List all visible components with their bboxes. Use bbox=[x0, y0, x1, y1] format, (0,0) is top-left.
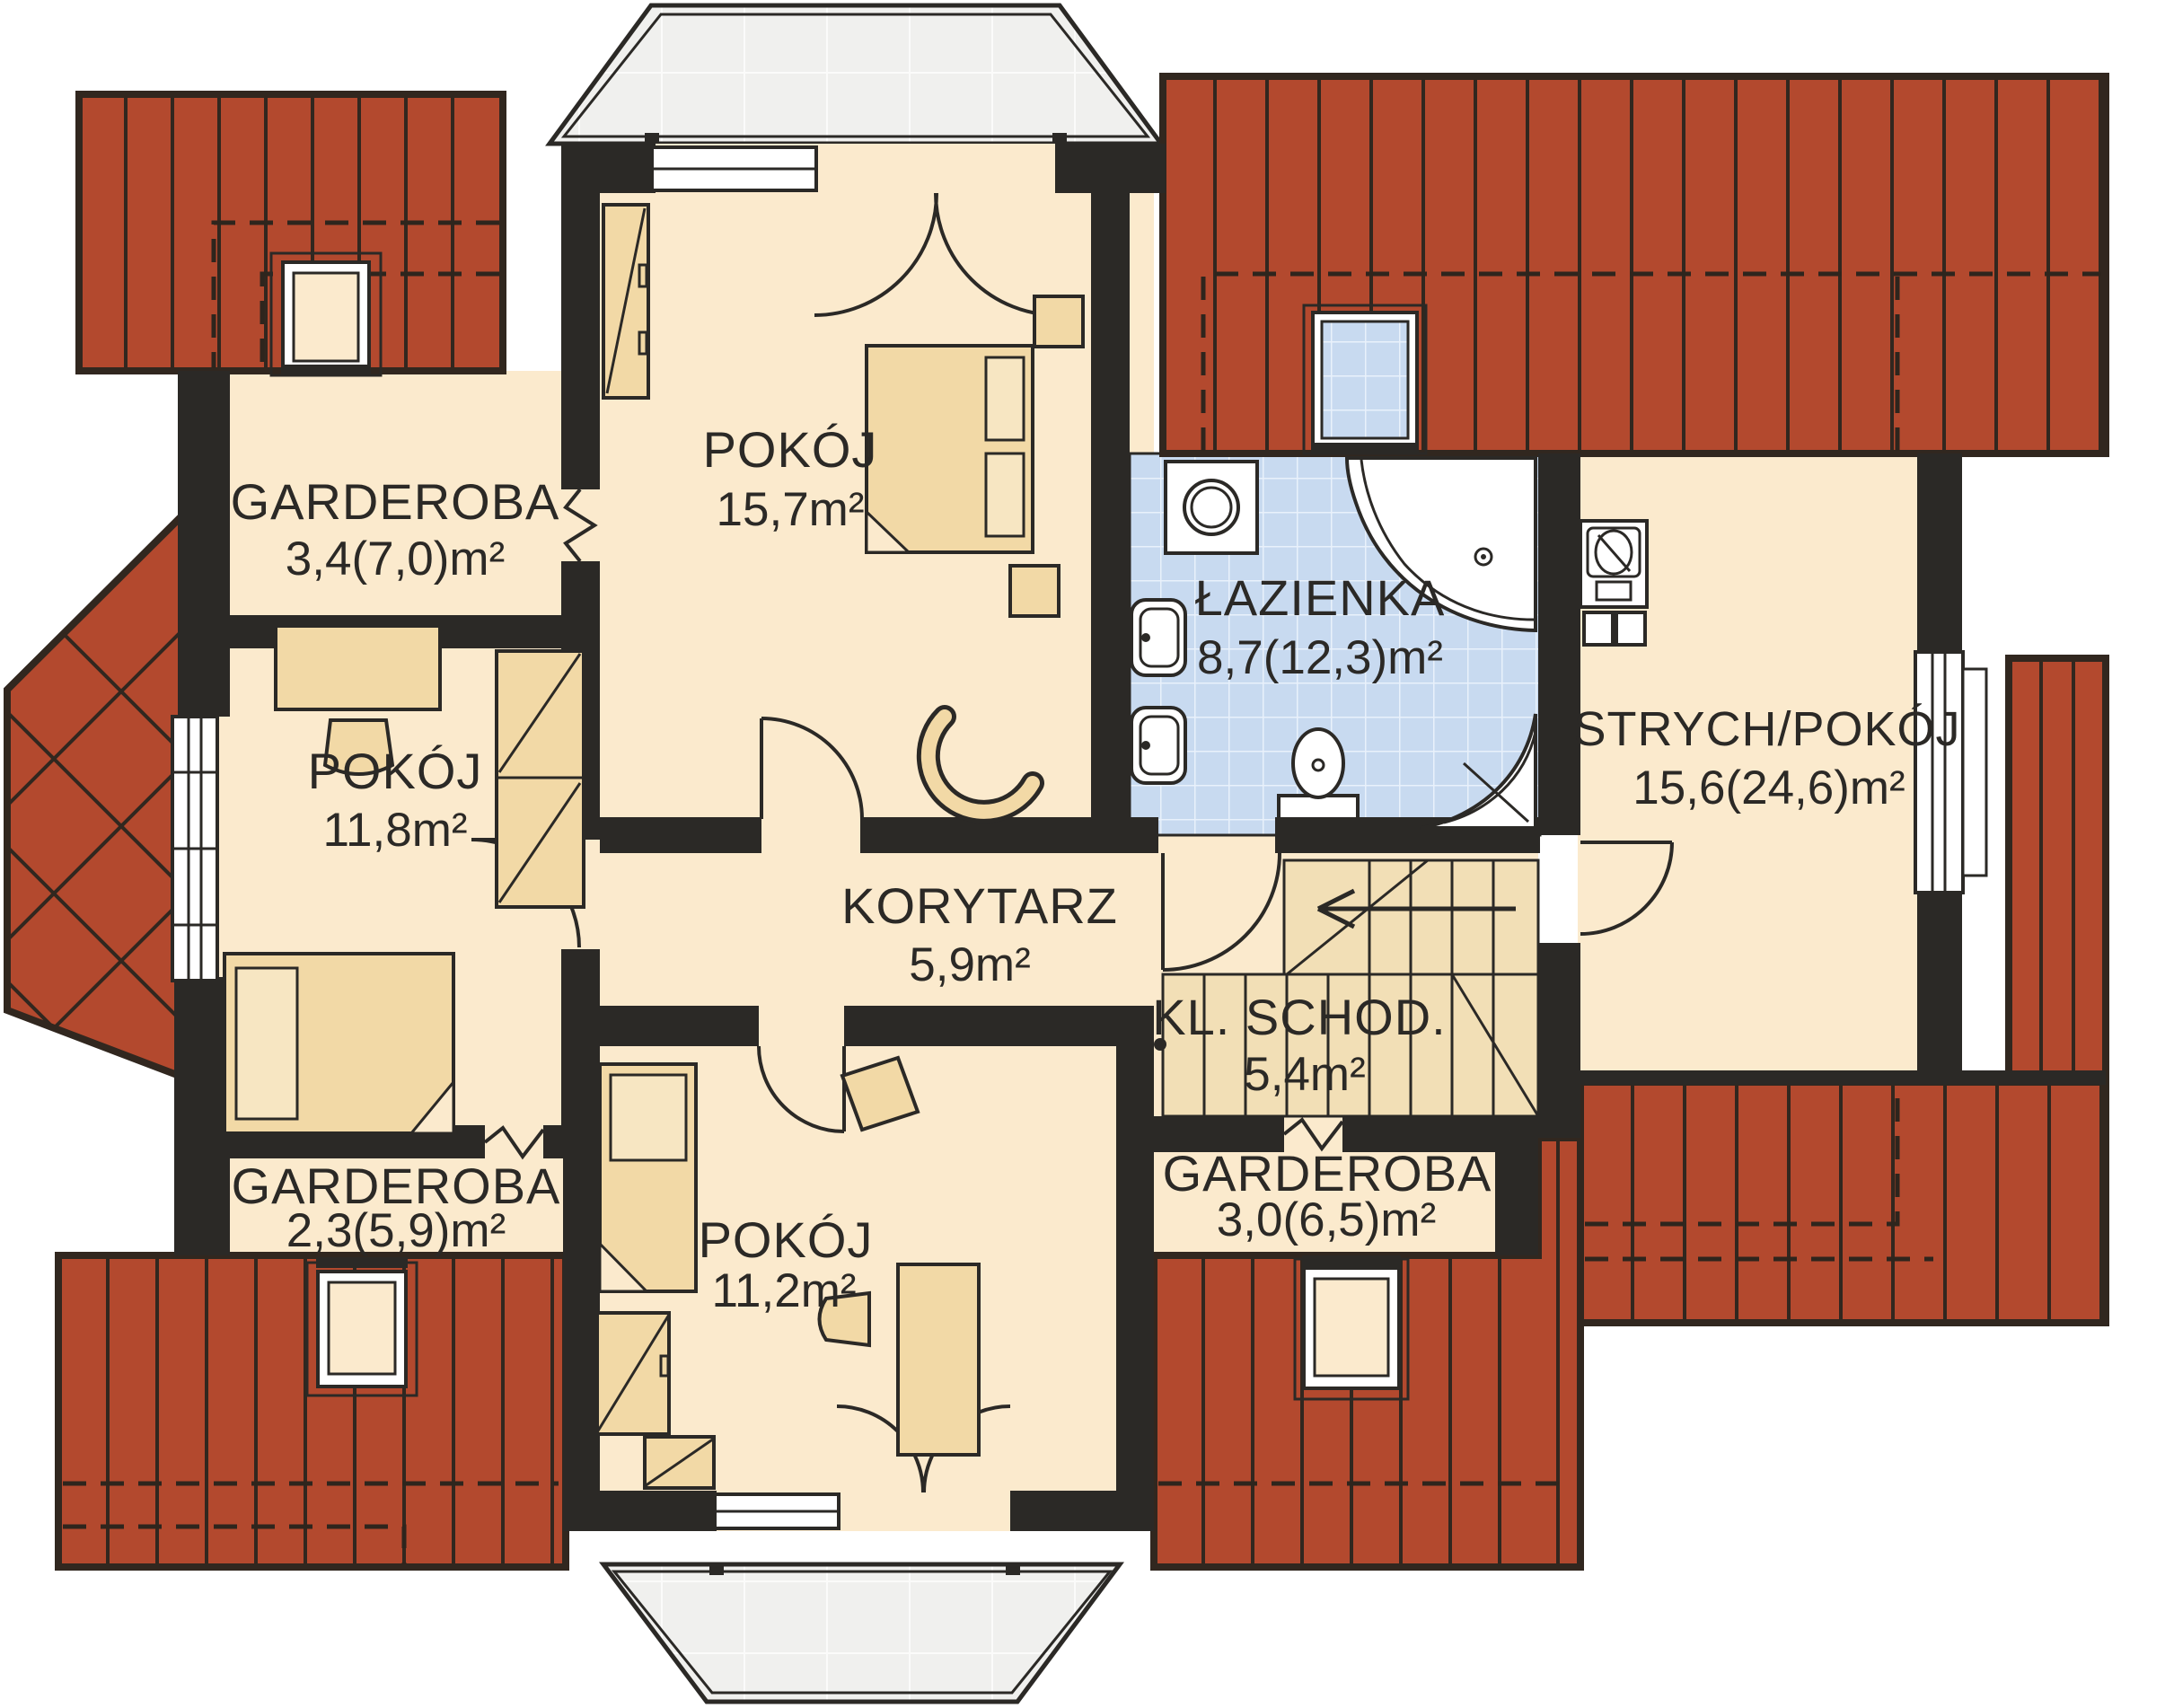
folding-door-garderoba-bl bbox=[485, 1125, 543, 1158]
double-bed-symbol bbox=[867, 346, 1033, 552]
desk-symbol-2 bbox=[898, 1264, 979, 1455]
room-area-garderoba-br: 3,0(6,5)m² bbox=[1217, 1193, 1436, 1246]
room-area-garderoba-tl: 3,4(7,0)m² bbox=[286, 533, 505, 585]
single-bed-symbol-2 bbox=[600, 1064, 696, 1291]
ventilation-unit-symbol bbox=[1580, 521, 1647, 645]
room-area-garderoba-bl: 2,3(5,9)m² bbox=[286, 1204, 506, 1257]
roof-bottom-left bbox=[58, 1255, 566, 1567]
room-label-garderoba-tl: GARDEROBA bbox=[231, 473, 560, 530]
room-area-korytarz: 5,9m² bbox=[909, 938, 1030, 991]
single-bed-symbol bbox=[224, 954, 453, 1133]
balcony-top bbox=[550, 5, 1161, 145]
bay-roof-left bbox=[4, 489, 189, 1163]
folding-door-garderoba-tl bbox=[561, 489, 600, 561]
desk-symbol bbox=[276, 626, 440, 709]
window-top bbox=[652, 147, 816, 190]
room-area-pokoj-157: 15,7m² bbox=[717, 483, 865, 536]
window-bay-left bbox=[172, 717, 217, 981]
sink-symbol-2 bbox=[1131, 708, 1185, 783]
room-label-pokoj-157: POKÓJ bbox=[703, 421, 878, 478]
room-label-lazienka: ŁAZIENKA bbox=[1195, 569, 1446, 626]
balcony-bottom bbox=[603, 1563, 1120, 1702]
sink-symbol bbox=[1131, 600, 1185, 675]
room-label-pokoj-118: POKÓJ bbox=[308, 743, 483, 799]
room-label-pokoj-112: POKÓJ bbox=[699, 1211, 874, 1268]
roof-right-strip bbox=[2009, 658, 2106, 1082]
room-label-kl-schod: KL. SCHOD. bbox=[1152, 989, 1446, 1045]
washing-machine-symbol bbox=[1166, 462, 1257, 553]
roof-window-top-left bbox=[271, 253, 381, 375]
window-bottom bbox=[715, 1494, 839, 1528]
cabinet-symbol bbox=[645, 1437, 714, 1488]
room-area-pokoj-112: 11,2m² bbox=[711, 1264, 856, 1317]
nightstand-symbol bbox=[1034, 296, 1083, 347]
roof-window-bottom-left bbox=[307, 1257, 417, 1395]
nightstand-symbol-2 bbox=[1010, 566, 1059, 616]
bathroom-skylight bbox=[1304, 305, 1426, 453]
folded-bed-symbol bbox=[597, 1313, 669, 1434]
roof-window-bottom-center bbox=[1295, 1255, 1408, 1399]
room-label-korytarz: KORYTARZ bbox=[841, 877, 1118, 934]
tall-wardrobe-symbol bbox=[497, 651, 584, 907]
room-area-lazienka: 8,7(12,3)m² bbox=[1197, 631, 1443, 684]
room-label-strych-pokoj: STRYCH/POKÓJ bbox=[1573, 702, 1960, 756]
window-strych-right bbox=[1915, 652, 1986, 893]
room-area-kl-schod: 5,4m² bbox=[1244, 1048, 1365, 1101]
floor-plan: GARDEROBA 3,4(7,0)m² POKÓJ 15,7m² ŁAZIEN… bbox=[0, 0, 2165, 1708]
roof-bottom-right bbox=[1580, 1082, 2106, 1323]
room-area-pokoj-118: 11,8m² bbox=[322, 804, 467, 857]
room-area-strych-pokoj: 15,6(24,6)m² bbox=[1633, 762, 1905, 814]
wardrobe-symbol bbox=[603, 205, 648, 398]
